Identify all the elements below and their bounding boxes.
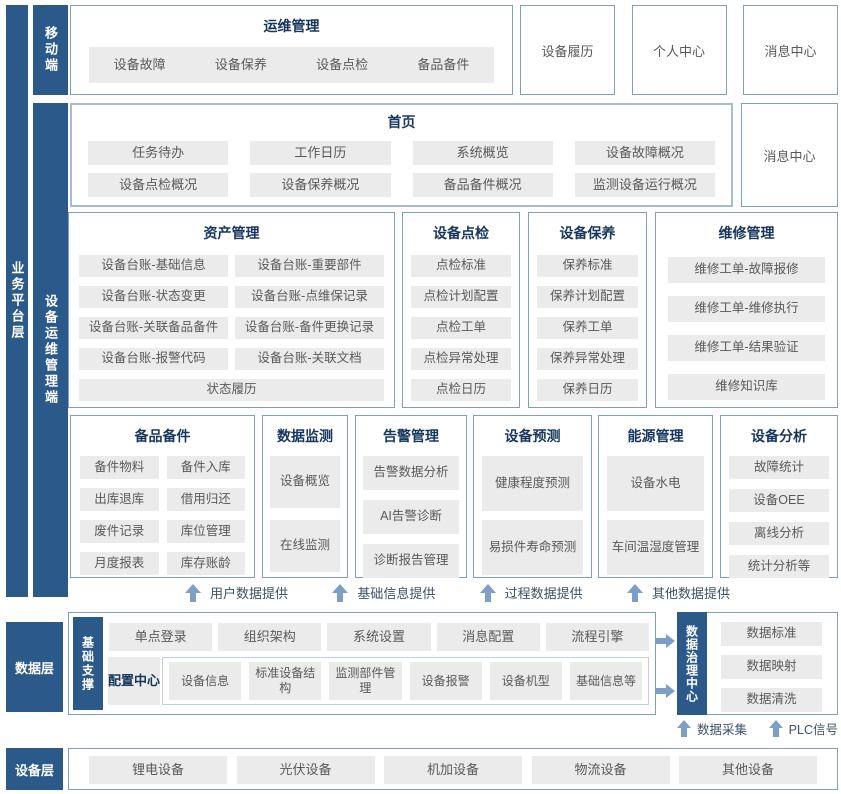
panel-title: 设备保养 (529, 223, 646, 243)
module-button[interactable]: 监测设备运行概况 (575, 173, 715, 197)
module-button[interactable]: 在线监测 (270, 520, 340, 572)
up-arrow-icon (480, 584, 496, 602)
module-button[interactable]: 故障统计 (729, 456, 829, 479)
inspection-panel: 设备点检 点检标准点检计划配置点检工单点检异常处理点检日历 (402, 212, 520, 408)
module-button[interactable]: 设备台账-报警代码 (79, 348, 228, 370)
module-button[interactable]: 维修工单-结果验证 (668, 335, 825, 361)
module-button[interactable]: 数据映射 (721, 655, 822, 679)
ops-management-panel: 运维管理 设备故障设备保养设备点检备品备件 (70, 5, 513, 95)
module-button[interactable]: 设备OEE (729, 489, 829, 512)
collection-arrow-label: 数据采集 (697, 719, 747, 738)
module-button[interactable]: 统计分析等 (729, 555, 829, 578)
module-button[interactable]: 备品备件 (393, 47, 494, 83)
module-button[interactable]: 设备故障 (89, 47, 190, 83)
panel-title: 维修管理 (656, 223, 837, 243)
module-button[interactable]: 设备信息 (169, 662, 241, 700)
module-button[interactable]: 保养日历 (537, 379, 638, 401)
analysis-items: 故障统计设备OEE离线分析统计分析等 (729, 456, 829, 578)
device-layer-panel: 锂电设备光伏设备机加设备物流设备其他设备 (68, 748, 838, 790)
panel-title: 运维管理 (71, 16, 512, 36)
up-arrow-icon (627, 584, 643, 602)
inspection-items: 点检标准点检计划配置点检工单点检异常处理点检日历 (411, 255, 511, 401)
monitoring-items: 设备概览在线监测 (270, 456, 340, 572)
module-button[interactable]: 其他设备 (679, 756, 817, 784)
layer-rail-business-platform: 业务平台层 (6, 5, 28, 597)
layer-rail-mobile: 移动端 (33, 5, 68, 95)
spare-parts-panel: 备品备件 备件物料备件入库出库退库借用归还废件记录库位管理月度报表库存账龄 (70, 415, 255, 578)
base-support-rail: 基础支撑 (73, 617, 103, 710)
module-button[interactable]: 工作日历 (250, 141, 390, 165)
mobile-side-modules: 设备履历个人中心消息中心 (520, 5, 838, 95)
config-center-row: 配置中心 设备信息标准设备结构监测部件管理设备报警设备机型基础信息等 (108, 657, 649, 705)
flow-arrow-group: 其他数据提供 (627, 583, 730, 602)
module-button[interactable]: 设备点检概况 (88, 173, 228, 197)
module-button[interactable]: 任务待办 (88, 141, 228, 165)
flow-arrow-label: 基础信息提供 (357, 583, 435, 602)
module-button[interactable]: 设备台账-关联文档 (235, 348, 384, 370)
home-items: 任务待办工作日历系统概览设备故障概况设备点检概况设备保养概况备品备件概况监测设备… (88, 141, 715, 197)
ops-management-items: 设备故障设备保养设备点检备品备件 (89, 47, 494, 83)
maintenance-panel: 设备保养 保养标准保养计划配置保养工单保养异常处理保养日历 (528, 212, 647, 408)
architecture-diagram: 业务平台层 移动端 设备运维管理端 运维管理 设备故障设备保养设备点检备品备件 … (0, 0, 841, 794)
module-button[interactable]: 设备台账-关联备品备件 (79, 317, 228, 339)
module-button[interactable]: 单点登录 (109, 623, 212, 651)
panel-title: 告警管理 (356, 426, 466, 446)
module-button[interactable]: 锂电设备 (89, 756, 227, 784)
module-button[interactable]: 设备台账-点维保记录 (235, 286, 384, 308)
device-items: 锂电设备光伏设备机加设备物流设备其他设备 (89, 756, 817, 784)
module-button[interactable]: 易损件寿命预测 (482, 520, 583, 575)
module-button[interactable]: 设备点检 (292, 47, 393, 83)
data-governance-panel: 数据治理中心 数据标准数据映射数据清洗 (677, 612, 838, 715)
module-button[interactable]: 设备报警 (410, 662, 482, 700)
module-button[interactable]: 系统设置 (327, 623, 430, 651)
flow-arrow-group: 过程数据提供 (480, 583, 583, 602)
module-button[interactable]: AI告警诊断 (363, 500, 459, 534)
module-button[interactable]: 监测部件管理 (329, 662, 401, 700)
module-button[interactable]: 光伏设备 (237, 756, 375, 784)
module-button[interactable]: 借用归还 (167, 488, 246, 511)
module-button[interactable]: 点检计划配置 (411, 286, 511, 308)
module-button[interactable]: 维修工单-故障报修 (668, 257, 825, 283)
module-button[interactable]: 标准设备结构 (249, 662, 321, 700)
device-prediction-panel: 设备预测 健康程度预测易损件寿命预测 (473, 415, 592, 578)
module-button[interactable]: 保养异常处理 (537, 348, 638, 370)
data-monitoring-panel: 数据监测 设备概览在线监测 (262, 415, 348, 578)
module-button[interactable]: 设备故障概况 (575, 141, 715, 165)
collection-arrow-group: PLC信号 (769, 719, 838, 738)
module-button[interactable]: 设备台账-状态变更 (79, 286, 228, 308)
module-box[interactable]: 消息中心 (743, 5, 838, 95)
flow-arrow-group: 基础信息提供 (332, 583, 435, 602)
module-button[interactable]: 机加设备 (384, 756, 522, 784)
config-items: 设备信息标准设备结构监测部件管理设备报警设备机型基础信息等 (162, 657, 649, 705)
layer-rail-device-ops: 设备运维管理端 (33, 103, 68, 597)
asset-items: 设备台账-基础信息设备台账-重要部件设备台账-状态变更设备台账-点维保记录设备台… (79, 255, 384, 401)
panel-title: 能源管理 (599, 426, 712, 446)
data-layer-label: 数据层 (6, 622, 63, 712)
flow-arrow-group: 用户数据提供 (185, 583, 288, 602)
panel-title: 设备点检 (403, 223, 519, 243)
module-button[interactable]: 状态履历 (79, 379, 384, 401)
module-box[interactable]: 个人中心 (632, 5, 727, 95)
module-button[interactable]: 组织架构 (218, 623, 321, 651)
alarm-management-panel: 告警管理 告警数据分析AI告警诊断诊断报告管理 (355, 415, 467, 578)
module-button[interactable]: 告警数据分析 (363, 456, 459, 490)
module-button[interactable]: 点检日历 (411, 379, 511, 401)
flow-arrow-label: 过程数据提供 (505, 583, 583, 602)
device-layer-label: 设备层 (6, 748, 63, 790)
layer-rail-label: 移动端 (41, 26, 60, 74)
module-button[interactable]: 设备台账-备件更换记录 (235, 317, 384, 339)
module-button[interactable]: 点检工单 (411, 317, 511, 339)
module-button[interactable]: 设备概览 (270, 456, 340, 508)
panel-title: 首页 (72, 112, 731, 132)
module-button[interactable]: 诊断报告管理 (363, 544, 459, 578)
right-arrow-icon (656, 684, 675, 698)
maintenance-items: 保养标准保养计划配置保养工单保养异常处理保养日历 (537, 255, 638, 401)
base-support-label: 基础支撑 (80, 636, 97, 692)
collection-arrows: 数据采集 PLC信号 (677, 719, 838, 738)
asset-management-panel: 资产管理 设备台账-基础信息设备台账-重要部件设备台账-状态变更设备台账-点维保… (68, 212, 395, 408)
module-button[interactable]: 备件入库 (167, 456, 246, 479)
module-button[interactable]: 出库退库 (80, 488, 159, 511)
prediction-items: 健康程度预测易损件寿命预测 (482, 456, 583, 575)
module-button[interactable]: 基础信息等 (570, 662, 642, 700)
module-button[interactable]: 健康程度预测 (482, 456, 583, 511)
module-button[interactable]: 数据清洗 (721, 688, 822, 712)
module-button[interactable]: 离线分析 (729, 522, 829, 545)
module-button[interactable]: 库存账龄 (167, 552, 246, 575)
module-button[interactable]: 库位管理 (167, 520, 246, 543)
up-arrow-icon (677, 720, 691, 737)
data-flow-arrows: 用户数据提供 基础信息提供 过程数据提供 其他数据提供 (185, 583, 730, 602)
module-button[interactable]: 物流设备 (532, 756, 670, 784)
module-button[interactable]: 保养计划配置 (537, 286, 638, 308)
panel-title: 设备预测 (474, 426, 591, 446)
up-arrow-icon (185, 584, 201, 602)
module-button[interactable]: 消息配置 (437, 623, 540, 651)
base-support-items: 单点登录组织架构系统设置消息配置流程引擎 (109, 623, 649, 651)
module-button[interactable]: 月度报表 (80, 552, 159, 575)
panel-title: 资产管理 (69, 223, 394, 243)
module-button[interactable]: 备品备件概况 (413, 173, 553, 197)
alarm-items: 告警数据分析AI告警诊断诊断报告管理 (363, 456, 459, 578)
module-button[interactable]: 点检异常处理 (411, 348, 511, 370)
module-button[interactable]: 设备台账-基础信息 (79, 255, 228, 277)
repair-items: 维修工单-故障报修维修工单-维修执行维修工单-结果验证维修知识库 (668, 257, 825, 400)
data-governance-label: 数据治理中心 (684, 625, 701, 703)
module-box[interactable]: 设备履历 (520, 5, 615, 95)
up-arrow-icon (332, 584, 348, 602)
module-button[interactable]: 点检标准 (411, 255, 511, 277)
flow-arrow-label: 其他数据提供 (652, 583, 730, 602)
collection-arrow-label: PLC信号 (789, 719, 838, 738)
module-button[interactable]: 废件记录 (80, 520, 159, 543)
device-analysis-panel: 设备分析 故障统计设备OEE离线分析统计分析等 (720, 415, 838, 578)
module-button[interactable]: 设备保养 (190, 47, 291, 83)
flow-arrow-label: 用户数据提供 (210, 583, 288, 602)
governance-items: 数据标准数据映射数据清洗 (721, 622, 822, 712)
base-support-panel: 基础支撑 单点登录组织架构系统设置消息配置流程引擎 配置中心 设备信息标准设备结… (68, 612, 656, 715)
home-panel: 首页 任务待办工作日历系统概览设备故障概况设备点检概况设备保养概况备品备件概况监… (70, 103, 733, 207)
message-center-box[interactable]: 消息中心 (741, 103, 838, 207)
module-button[interactable]: 车间温湿度管理 (607, 520, 704, 575)
collection-arrow-group: 数据采集 (677, 719, 747, 738)
layer-rail-label: 业务平台层 (8, 261, 27, 341)
module-button[interactable]: 保养标准 (537, 255, 638, 277)
panel-title: 备品备件 (71, 426, 254, 446)
module-button[interactable]: 维修知识库 (668, 374, 825, 400)
data-governance-rail: 数据治理中心 (677, 612, 707, 715)
spare-parts-items: 备件物料备件入库出库退库借用归还废件记录库位管理月度报表库存账龄 (80, 456, 245, 575)
module-button[interactable]: 数据标准 (721, 622, 822, 646)
right-arrow-icon (656, 634, 675, 648)
panel-title: 数据监测 (263, 426, 347, 446)
module-button[interactable]: 设备台账-重要部件 (235, 255, 384, 277)
module-button[interactable]: 设备机型 (490, 662, 562, 700)
module-button[interactable]: 流程引擎 (546, 623, 649, 651)
module-button[interactable]: 维修工单-维修执行 (668, 296, 825, 322)
module-button[interactable]: 设备水电 (607, 456, 704, 511)
module-button[interactable]: 设备保养概况 (250, 173, 390, 197)
energy-management-panel: 能源管理 设备水电车间温湿度管理 (598, 415, 713, 578)
module-button[interactable]: 系统概览 (413, 141, 553, 165)
panel-title: 设备分析 (721, 426, 837, 446)
module-button[interactable]: 保养工单 (537, 317, 638, 339)
module-button[interactable]: 备件物料 (80, 456, 159, 479)
repair-management-panel: 维修管理 维修工单-故障报修维修工单-维修执行维修工单-结果验证维修知识库 (655, 212, 838, 408)
config-center-label: 配置中心 (108, 657, 160, 705)
up-arrow-icon (769, 720, 783, 737)
layer-rail-label: 设备运维管理端 (41, 294, 60, 406)
energy-items: 设备水电车间温湿度管理 (607, 456, 704, 575)
